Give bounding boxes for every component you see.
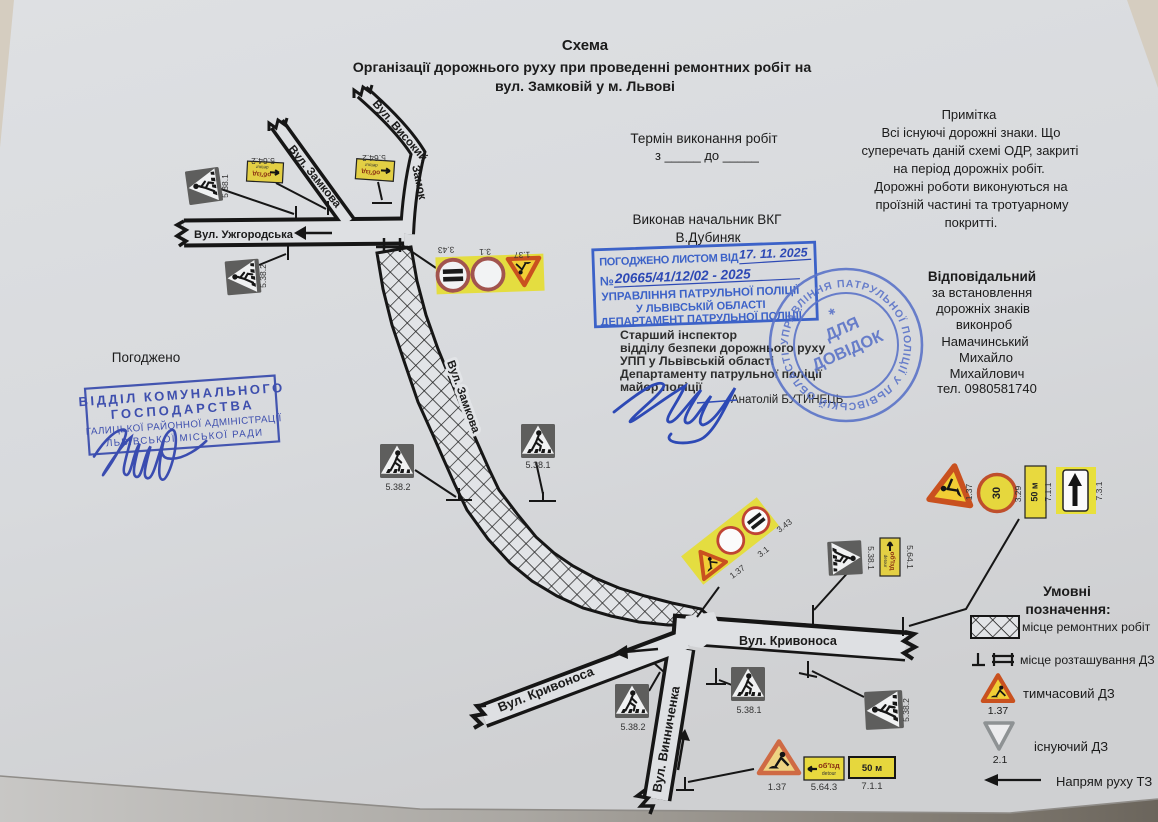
svg-text:Термін виконання робіт: Термін виконання робіт — [630, 131, 777, 146]
svg-text:покритті.: покритті. — [945, 215, 998, 230]
svg-text:вул. Замковій у м. Львові: вул. Замковій у м. Львові — [495, 79, 675, 95]
svg-text:місце розташування ДЗ: місце розташування ДЗ — [1020, 653, 1155, 667]
svg-text:5.38.2: 5.38.2 — [901, 698, 911, 722]
svg-text:проїзній частині та тротуарном: проїзній частині та тротуарному — [875, 197, 1069, 212]
svg-text:1.37: 1.37 — [988, 705, 1009, 717]
svg-text:тел. 0980581740: тел. 0980581740 — [937, 381, 1037, 396]
svg-text:об'їзд: об'їзд — [252, 170, 271, 179]
svg-text:detour: detour — [883, 555, 888, 568]
svg-text:1.37: 1.37 — [513, 250, 530, 261]
svg-text:виконроб: виконроб — [956, 317, 1012, 332]
svg-text:3.29: 3.29 — [1013, 485, 1023, 502]
svg-text:дорожніх знаків: дорожніх знаків — [936, 301, 1030, 316]
svg-text:5.38.2: 5.38.2 — [385, 482, 410, 492]
svg-text:Організації дорожнього руху пр: Організації дорожнього руху при проведен… — [353, 60, 812, 76]
svg-text:№: № — [600, 274, 614, 288]
svg-text:тимчасовий ДЗ: тимчасовий ДЗ — [1023, 686, 1115, 701]
svg-text:В.Дубиняк: В.Дубиняк — [675, 230, 740, 245]
svg-text:50 м: 50 м — [862, 763, 882, 774]
svg-text:5.38.2: 5.38.2 — [258, 264, 268, 288]
svg-text:50 м: 50 м — [1029, 482, 1039, 502]
svg-text:Всі існуючі дорожні знаки. Що: Всі існуючі дорожні знаки. Що — [882, 125, 1061, 140]
svg-text:1.37: 1.37 — [964, 483, 974, 500]
svg-text:1.37: 1.37 — [768, 782, 787, 793]
svg-text:7.1.1: 7.1.1 — [1043, 482, 1053, 501]
svg-text:Дорожні роботи виконуються на: Дорожні роботи виконуються на — [874, 179, 1068, 194]
svg-text:17. 11. 2025: 17. 11. 2025 — [739, 245, 809, 261]
svg-text:Михайло: Михайло — [959, 350, 1013, 365]
svg-text:2.1: 2.1 — [993, 754, 1008, 766]
svg-text:5.64.3: 5.64.3 — [811, 782, 837, 793]
svg-text:об'їзд: об'їзд — [889, 552, 897, 571]
svg-text:5.38.1: 5.38.1 — [220, 174, 230, 198]
svg-text:з _____ до _____: з _____ до _____ — [655, 148, 760, 163]
svg-text:3.1: 3.1 — [479, 247, 491, 257]
svg-text:Старший інспектор: Старший інспектор — [620, 328, 737, 342]
svg-text:detour: detour — [822, 771, 837, 777]
svg-text:5.64.2: 5.64.2 — [251, 156, 275, 166]
svg-text:7.3.1: 7.3.1 — [1094, 481, 1104, 500]
svg-text:на період дорожніх робіт.: на період дорожніх робіт. — [893, 161, 1044, 176]
svg-text:Відповідальний: Відповідальний — [928, 269, 1036, 284]
svg-text:Вул. Кривоноса: Вул. Кривоноса — [739, 634, 838, 648]
svg-text:за встановлення: за встановлення — [932, 285, 1032, 300]
svg-text:Намачинський: Намачинський — [941, 334, 1028, 349]
svg-text:7.1.1: 7.1.1 — [861, 781, 882, 792]
svg-text:об'їзд: об'їзд — [818, 761, 840, 770]
svg-text:30: 30 — [991, 487, 1003, 499]
svg-text:3.43: 3.43 — [437, 245, 454, 256]
svg-text:5.38.1: 5.38.1 — [525, 460, 550, 470]
svg-text:Вул. Ужгородська: Вул. Ужгородська — [194, 229, 294, 241]
svg-text:Виконав начальник ВКГ: Виконав начальник ВКГ — [633, 212, 783, 227]
svg-text:місце ремонтних робіт: місце ремонтних робіт — [1022, 620, 1151, 634]
svg-text:Погоджено: Погоджено — [112, 350, 180, 365]
svg-text:5.38.2: 5.38.2 — [620, 722, 645, 732]
svg-text:Примітка: Примітка — [942, 107, 998, 122]
svg-text:Схема: Схема — [562, 37, 609, 54]
svg-text:5.64.1: 5.64.1 — [905, 545, 915, 569]
svg-text:Михайлович: Михайлович — [950, 366, 1025, 381]
svg-text:позначення:: позначення: — [1025, 601, 1110, 617]
svg-text:УПП у Львівській області: УПП у Львівській області — [620, 354, 774, 368]
svg-text:Умовні: Умовні — [1043, 583, 1091, 599]
svg-text:5.38.1: 5.38.1 — [736, 705, 761, 715]
svg-text:5.38.1: 5.38.1 — [866, 546, 876, 570]
svg-text:5.64.2: 5.64.2 — [362, 153, 386, 163]
svg-text:Напрям руху ТЗ: Напрям руху ТЗ — [1056, 774, 1152, 789]
svg-text:суперечать даній схемі ОДР, за: суперечать даній схемі ОДР, закриті — [862, 143, 1079, 158]
svg-text:існуючий ДЗ: існуючий ДЗ — [1034, 739, 1108, 754]
